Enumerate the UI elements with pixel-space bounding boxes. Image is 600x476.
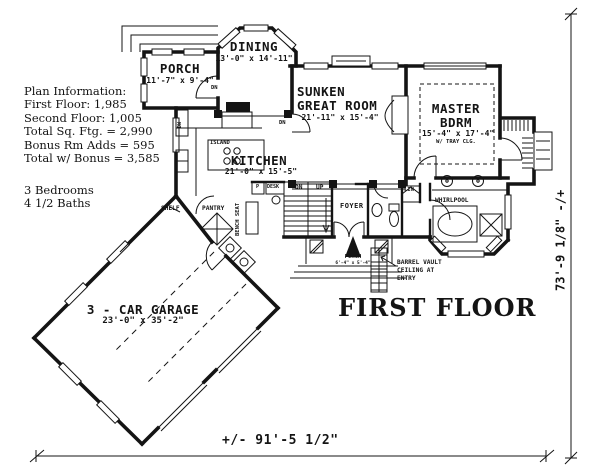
- floor-plan-sheet: Plan Information: First Floor: 1,985 Sec…: [0, 0, 600, 476]
- linen-label: LIN.: [404, 188, 417, 194]
- garage-dims: 23'-0" x 35'-2": [94, 317, 192, 327]
- stairs-up-label: UP: [316, 185, 323, 192]
- great-room-dims: 21'-11" x 15'-4": [300, 114, 380, 122]
- master-note: W/ TRAY CLG.: [426, 140, 486, 146]
- desk-label: DESK: [267, 185, 279, 190]
- porch-nw-label: PORCH: [150, 62, 210, 75]
- dishwasher-label: DW: [178, 122, 183, 128]
- roof-step-lines: [122, 26, 218, 52]
- bench-seat-label: BENCH SEAT: [236, 203, 242, 236]
- dining-label: DINING: [222, 40, 286, 53]
- foyer-label: FOYER: [340, 203, 364, 210]
- width-dimension: +/- 91'-5 1/2": [222, 434, 339, 448]
- master-bath-fixtures: [432, 176, 508, 243]
- floor-plan-drawing: [0, 0, 600, 476]
- shelf-label: SHELF: [161, 206, 180, 213]
- height-dimension: 73'-9 1/8" -/+: [555, 180, 568, 300]
- island-label: ISLAND: [210, 141, 230, 147]
- porch-dn-label: DN: [211, 86, 218, 92]
- pantry-closet-label: P: [256, 185, 259, 190]
- plan-info-block: Plan Information: First Floor: 1,985 Sec…: [24, 85, 160, 165]
- plan-info-line: Total w/ Bonus = 3,585: [24, 152, 160, 165]
- garage-label: 3 - CAR GARAGE: [84, 303, 202, 316]
- media-builtin: [385, 96, 408, 134]
- plan-info-line: Total Sq. Ftg. = 2,990: [24, 125, 160, 138]
- whirlpool-label: WHIRLPOOL: [435, 198, 469, 205]
- barrel-vault-note-2: CEILING AT: [397, 268, 434, 275]
- plan-info-line: Bonus Rm Adds = 595: [24, 139, 160, 152]
- barrel-vault-note-3: ENTRY: [397, 276, 416, 283]
- dining-dn-label: DN: [279, 121, 286, 127]
- bed-bath-block: 3 Bedrooms 4 1/2 Baths: [24, 184, 94, 211]
- window-seat: [534, 132, 552, 170]
- kitchen-dims: 21'-0" x 15'-5": [222, 168, 300, 176]
- floor-title: FIRST FLOOR: [338, 293, 536, 322]
- baths-text: 4 1/2 Baths: [24, 197, 94, 210]
- stairs-dn-label: DN: [295, 185, 302, 192]
- entry-porch-dims: 6'-4" x 5'-4": [334, 262, 372, 267]
- plan-info-line: Second Floor: 1,005: [24, 112, 160, 125]
- great-room-label-2: GREAT ROOM: [297, 99, 377, 112]
- garage-interior: [114, 252, 261, 431]
- pantry-label: PANTRY: [202, 206, 224, 213]
- porch-nw-dims: 11'-7" x 9'-4": [144, 77, 216, 85]
- master-label-1: MASTER: [424, 102, 488, 115]
- bedrooms-text: 3 Bedrooms: [24, 184, 94, 197]
- kitchen-label: KITCHEN: [231, 154, 287, 167]
- barrel-vault-note-1: BARREL VAULT: [397, 260, 442, 267]
- plan-info-line: First Floor: 1,985: [24, 98, 160, 111]
- master-dims: 15'-4" x 17'-4": [422, 130, 490, 138]
- plan-info-line: Plan Information:: [24, 85, 160, 98]
- great-room-label-1: SUNKEN: [297, 85, 345, 98]
- closet-hangers: [504, 120, 533, 168]
- master-label-2: BDRM: [424, 116, 488, 129]
- entry-porch-label: PORCH: [338, 255, 368, 261]
- dining-dims: 13'-0" x 14'-11": [214, 55, 294, 63]
